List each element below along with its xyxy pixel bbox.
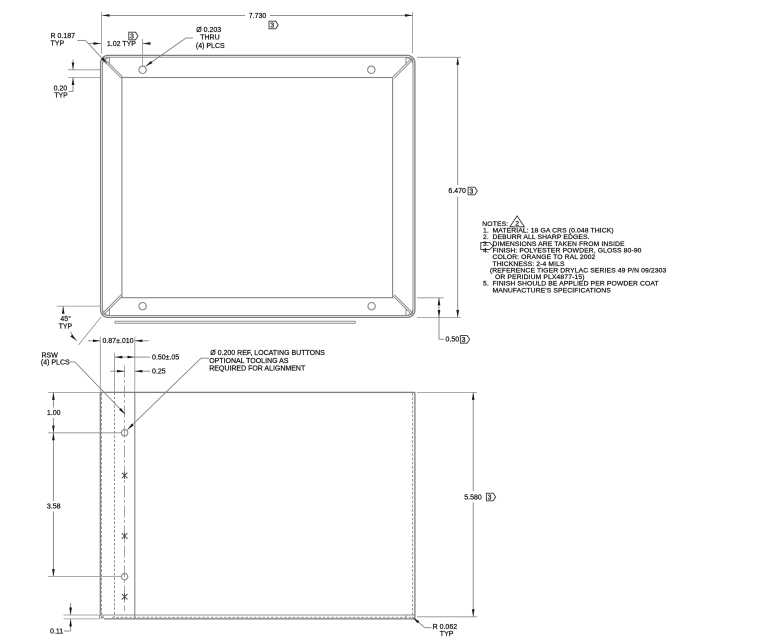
svg-text:3.58: 3.58 [47,504,61,511]
svg-text:3: 3 [488,495,492,502]
svg-text:3: 3 [270,23,274,30]
svg-text:(4) PLCS: (4) PLCS [196,43,225,50]
svg-text:R 0.062: R 0.062 [433,624,458,631]
svg-text:7.730: 7.730 [249,13,267,20]
svg-text:TYP: TYP [51,41,65,48]
svg-text:5.580: 5.580 [464,494,482,501]
svg-text:1.00: 1.00 [47,410,61,417]
svg-text:0.50±.05: 0.50±.05 [152,355,179,362]
svg-text:TYP: TYP [59,323,73,330]
svg-text:Ø 0.200 REF, LOCATING BUTTONS: Ø 0.200 REF, LOCATING BUTTONS [210,350,325,357]
svg-text:0.11: 0.11 [50,628,63,635]
svg-text:3: 3 [469,189,473,196]
svg-text:5.: 5. [483,281,489,288]
svg-text:6.470: 6.470 [448,188,466,195]
svg-text:0.20: 0.20 [54,85,68,92]
svg-text:REQUIRED FOR ALIGNMENT: REQUIRED FOR ALIGNMENT [209,366,306,373]
svg-text:TYP: TYP [440,631,454,638]
svg-text:3: 3 [462,337,466,344]
svg-text:1.02 TYP: 1.02 TYP [107,41,136,48]
svg-text:OPTIONAL TOOLING AS: OPTIONAL TOOLING AS [209,358,289,365]
svg-text:Ø 0.203: Ø 0.203 [196,27,221,34]
svg-text:R 0.187: R 0.187 [51,33,76,40]
svg-text:4.: 4. [483,248,489,255]
svg-text:(4) PLCS: (4) PLCS [41,359,70,366]
svg-text:45°: 45° [60,315,71,323]
svg-text:MANUFACTURE'S SPECIFICATIONS: MANUFACTURE'S SPECIFICATIONS [493,287,612,294]
svg-text:THRU: THRU [200,35,219,42]
svg-text:3: 3 [130,34,134,41]
svg-text:0.25: 0.25 [152,369,166,376]
svg-text:2: 2 [515,220,519,227]
svg-text:0.50: 0.50 [446,337,460,344]
svg-text:0.87±.010: 0.87±.010 [102,338,133,345]
svg-text:TYP: TYP [54,93,68,100]
